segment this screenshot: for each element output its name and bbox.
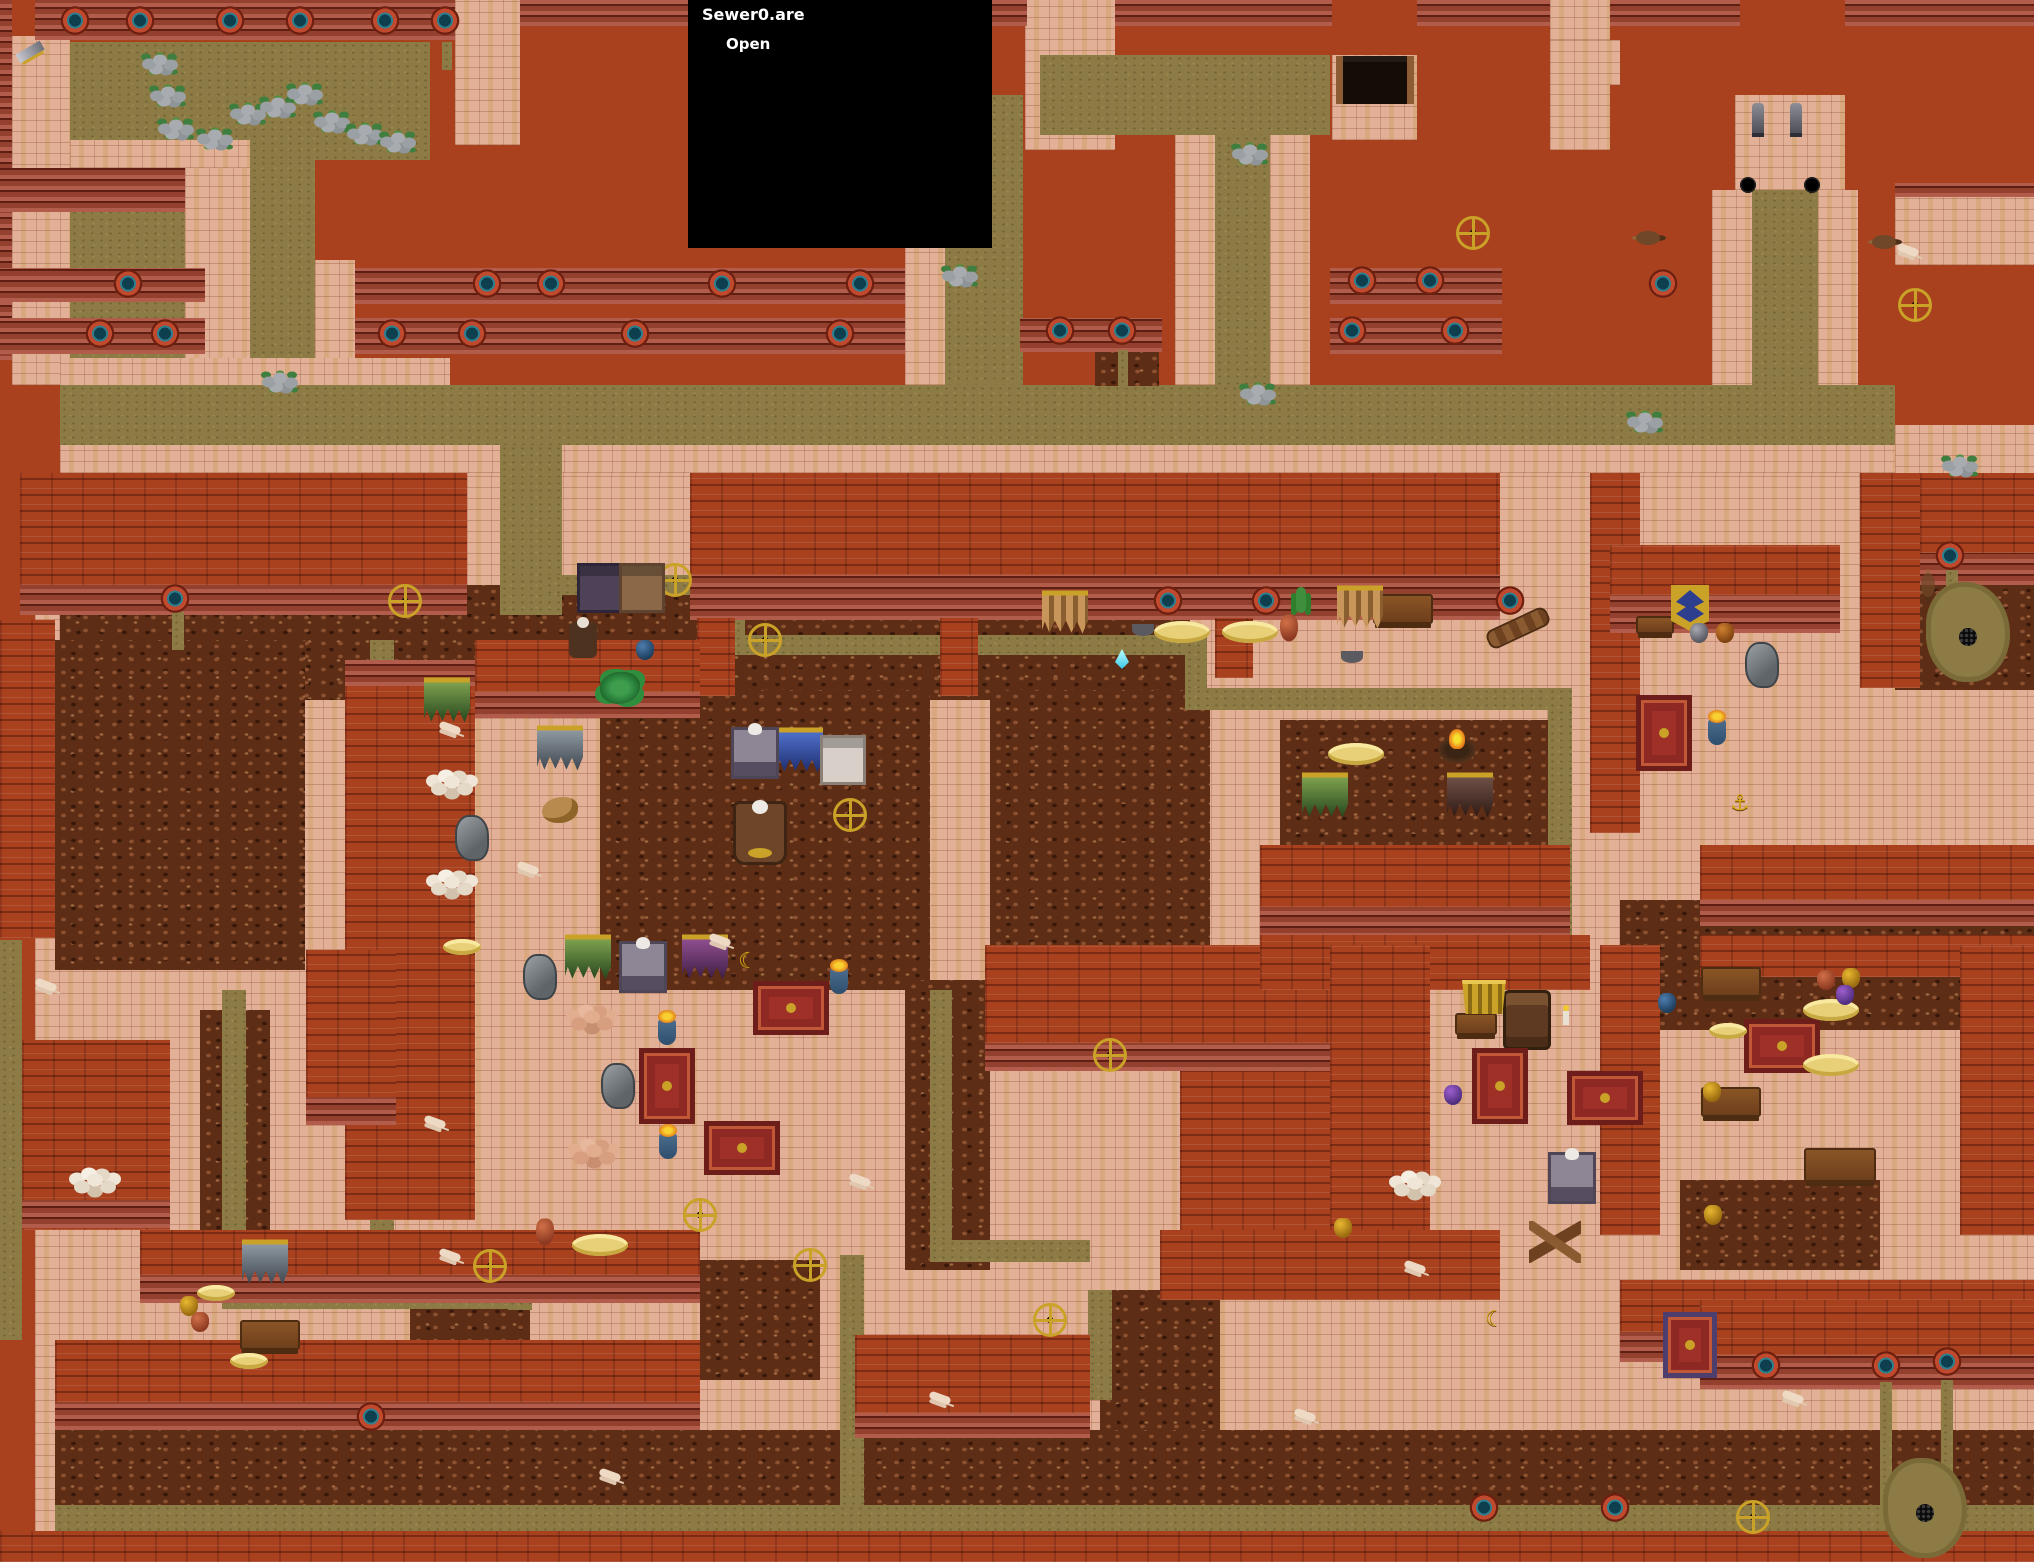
skull-pile[interactable] <box>1407 1177 1423 1190</box>
wall-block <box>1700 1300 2034 1355</box>
wall-band <box>0 168 185 212</box>
pot[interactable] <box>1280 615 1298 642</box>
pot[interactable] <box>1341 651 1363 663</box>
skull-pile[interactable] <box>584 1011 600 1024</box>
sewer-pipe[interactable] <box>1249 584 1283 620</box>
dialog-title: Sewer0.are <box>688 0 992 24</box>
hay-pile[interactable] <box>572 1234 628 1256</box>
sewer-pipe[interactable] <box>1930 1345 1964 1381</box>
wooden-table[interactable] <box>240 1320 300 1350</box>
sewer-pipe[interactable] <box>1043 314 1077 350</box>
wall-block <box>1700 845 2034 900</box>
carpet[interactable] <box>1636 695 1692 771</box>
mossy-rocks[interactable] <box>1953 457 1967 468</box>
mossy-rocks[interactable] <box>273 373 287 384</box>
path-olive <box>930 1240 1090 1262</box>
brazier[interactable] <box>658 1019 676 1045</box>
gold-trinket[interactable]: ☾ <box>738 951 758 973</box>
wall-band <box>992 0 1027 26</box>
gold-wheel-medallion[interactable] <box>1093 1038 1127 1072</box>
sewer-pipe[interactable] <box>1933 539 1967 575</box>
wall-block <box>1180 1071 1330 1241</box>
cabinet[interactable] <box>577 563 623 613</box>
wall-block <box>1590 473 1640 833</box>
sewer-pipe[interactable] <box>158 582 192 618</box>
wall-band <box>355 268 905 304</box>
hay-pile[interactable] <box>230 1353 268 1369</box>
candle[interactable] <box>1563 1011 1569 1025</box>
campfire[interactable] <box>1438 737 1476 763</box>
sewer-pipe[interactable] <box>368 4 402 40</box>
gold-wheel-medallion[interactable] <box>793 1248 827 1282</box>
wall-band <box>0 268 205 302</box>
floor-pink <box>70 140 250 168</box>
rubble-field <box>1680 1180 1880 1270</box>
gold-trinket[interactable]: ⚓ <box>1730 793 1750 815</box>
pot[interactable] <box>1836 985 1854 1005</box>
sewer-pipe[interactable] <box>455 317 489 353</box>
sewer-pipe[interactable] <box>1105 314 1139 350</box>
wall-band <box>1260 907 1570 937</box>
path-olive <box>930 990 952 1245</box>
sewer-pipe[interactable] <box>823 317 857 353</box>
path-olive <box>1088 1290 1112 1400</box>
pot[interactable] <box>636 640 654 660</box>
wall-band <box>22 1200 170 1228</box>
sewer-pipe[interactable] <box>283 4 317 40</box>
path-olive <box>60 385 1895 445</box>
wall-band <box>1895 183 2034 197</box>
floor-pink <box>1550 40 1620 85</box>
wooden-table[interactable] <box>1804 1148 1876 1182</box>
sewer-pipe[interactable] <box>1345 264 1379 300</box>
gold-wheel-medallion[interactable] <box>1898 288 1932 322</box>
wooden-table[interactable] <box>1636 616 1674 634</box>
doorway[interactable] <box>1336 56 1414 104</box>
statue[interactable] <box>1752 103 1764 133</box>
wall-block <box>1330 945 1430 1235</box>
floor-pink <box>1175 135 1215 385</box>
statue[interactable] <box>1790 103 1802 133</box>
mossy-rocks[interactable] <box>161 87 175 98</box>
sewer-pipe[interactable] <box>1438 314 1472 350</box>
mossy-rocks[interactable] <box>358 125 372 136</box>
skull-shrine[interactable] <box>619 941 667 993</box>
mossy-rocks[interactable] <box>241 105 255 116</box>
brazier[interactable] <box>830 968 848 994</box>
carpet[interactable] <box>704 1121 780 1175</box>
mossy-rocks[interactable] <box>1243 145 1257 156</box>
wall-band <box>306 1097 396 1125</box>
sewer-pipe[interactable] <box>83 317 117 353</box>
dialog-option-open[interactable]: Open <box>726 35 992 53</box>
skull-pile[interactable] <box>586 1145 602 1158</box>
standing-stone[interactable] <box>601 1063 635 1109</box>
mossy-rocks[interactable] <box>1638 413 1652 424</box>
insect-creature[interactable] <box>1921 573 1935 597</box>
pot[interactable] <box>1690 623 1708 643</box>
floor-pink <box>1270 135 1310 385</box>
hay-pile[interactable] <box>443 939 481 955</box>
pot[interactable] <box>536 1219 554 1246</box>
gold-wheel-medallion[interactable] <box>748 623 782 657</box>
golden-rack[interactable] <box>1462 980 1506 1014</box>
path-olive <box>442 42 452 70</box>
path-olive <box>72 42 82 70</box>
cabinet[interactable] <box>820 735 866 785</box>
wall-band <box>985 1043 1330 1071</box>
brazier[interactable] <box>1708 719 1726 745</box>
path-olive <box>1185 688 1560 710</box>
path-olive <box>1118 350 1128 388</box>
gold-wheel-medallion[interactable] <box>388 584 422 618</box>
path-olive <box>1040 55 1330 135</box>
pot[interactable] <box>1334 1218 1352 1238</box>
wall-band <box>1417 0 1550 26</box>
sewer-pipe[interactable] <box>213 4 247 40</box>
pot[interactable] <box>1703 1082 1721 1102</box>
sewer-pipe[interactable] <box>58 4 92 40</box>
wall-block <box>0 1531 2034 1562</box>
standing-stone[interactable] <box>523 954 557 1000</box>
wall-band <box>1610 0 1740 26</box>
sewer-pipe[interactable] <box>705 267 739 303</box>
mossy-rocks[interactable] <box>1251 385 1265 396</box>
mossy-rocks[interactable] <box>271 98 285 109</box>
gold-wheel-medallion[interactable] <box>1033 1303 1067 1337</box>
floor-pink <box>455 0 520 145</box>
gold-wheel-medallion[interactable] <box>1456 216 1490 250</box>
wall-block <box>690 473 1500 575</box>
sewage-pool[interactable] <box>1926 582 2010 682</box>
game-map[interactable]: ☾☾⚓ Sewer0.are Open <box>0 0 2034 1562</box>
sewer-pipe[interactable] <box>1335 314 1369 350</box>
mossy-rocks[interactable] <box>208 130 222 141</box>
sewer-pipe[interactable] <box>843 267 877 303</box>
mossy-rocks[interactable] <box>298 85 312 96</box>
wall-block <box>55 1340 700 1402</box>
area-dialog: Sewer0.are Open <box>688 0 992 248</box>
wall-band <box>1115 0 1332 26</box>
wall-band <box>1845 0 2034 26</box>
hay-pile[interactable] <box>197 1285 235 1301</box>
skull-pile[interactable] <box>444 776 460 789</box>
sewer-pipe[interactable] <box>1646 267 1680 303</box>
wall-band <box>855 1413 1090 1438</box>
sewer-pipe[interactable] <box>618 317 652 353</box>
gold-wheel-medallion[interactable] <box>473 1249 507 1283</box>
skull-shrine[interactable] <box>1548 1152 1596 1204</box>
wall-block <box>20 473 467 585</box>
rubble-field <box>55 1430 2034 1508</box>
standing-stone[interactable] <box>1745 642 1779 688</box>
mossy-rocks[interactable] <box>153 55 167 66</box>
carpet[interactable] <box>1472 1048 1528 1124</box>
skull-pile[interactable] <box>444 876 460 889</box>
standing-stone[interactable] <box>455 815 489 861</box>
carpet[interactable] <box>639 1048 695 1124</box>
carpet[interactable] <box>1663 1312 1717 1378</box>
wall-block <box>1860 473 1920 688</box>
gold-wheel-medallion[interactable] <box>1736 1500 1770 1534</box>
throne[interactable] <box>1503 990 1551 1050</box>
pot[interactable] <box>1716 623 1734 643</box>
sewer-pipe[interactable] <box>1151 584 1185 620</box>
wall-block <box>1610 545 1840 595</box>
wall-block <box>855 1335 1090 1413</box>
sewage-pool[interactable] <box>1883 1458 1967 1558</box>
broken-cart[interactable] <box>1529 1221 1581 1263</box>
carpet[interactable] <box>753 981 829 1035</box>
pot[interactable] <box>1704 1205 1722 1225</box>
hay-pile[interactable] <box>1222 621 1278 643</box>
wall-block <box>697 618 735 696</box>
wooden-table[interactable] <box>1701 967 1761 997</box>
hay-pile[interactable] <box>1803 1054 1859 1076</box>
pot[interactable] <box>1817 970 1835 990</box>
pot[interactable] <box>180 1296 198 1316</box>
wall-band <box>475 692 700 718</box>
sewer-pipe[interactable] <box>1467 1491 1501 1527</box>
sewer-pipe[interactable] <box>148 317 182 353</box>
mossy-rocks[interactable] <box>953 267 967 278</box>
pot[interactable] <box>1444 1085 1462 1105</box>
mossy-rocks[interactable] <box>325 113 339 124</box>
npc-figure[interactable] <box>569 622 597 658</box>
insect-creature[interactable] <box>1636 231 1660 245</box>
wall-block <box>1260 845 1570 907</box>
wooden-table[interactable] <box>1455 1013 1497 1035</box>
plant[interactable] <box>1296 587 1306 613</box>
hay-pile[interactable] <box>1328 743 1384 765</box>
wall-band <box>1700 900 2034 926</box>
pot[interactable] <box>1658 993 1676 1013</box>
wall-block <box>1960 945 2034 1235</box>
gold-wheel-medallion[interactable] <box>683 1198 717 1232</box>
wall-block <box>1160 1230 1500 1300</box>
floor-hole[interactable] <box>1804 177 1820 193</box>
sewer-pipe[interactable] <box>1413 264 1447 300</box>
hay-pile[interactable] <box>1709 1023 1747 1039</box>
rubble-field <box>55 640 305 970</box>
sewer-pipe[interactable] <box>111 267 145 303</box>
sewer-pipe[interactable] <box>1598 1491 1632 1527</box>
wall-block <box>940 618 978 696</box>
brazier[interactable] <box>659 1133 677 1159</box>
sewer-pipe[interactable] <box>123 4 157 40</box>
floor-pink <box>60 445 1895 473</box>
floor-hole[interactable] <box>1740 177 1756 193</box>
path-olive <box>297 42 307 70</box>
pot[interactable] <box>1132 624 1154 636</box>
sewer-pipe[interactable] <box>534 267 568 303</box>
wall-band <box>1020 318 1162 352</box>
floor-pink <box>60 358 450 386</box>
path-olive <box>1215 135 1270 385</box>
mossy-rocks[interactable] <box>169 120 183 131</box>
sewer-pipe[interactable] <box>428 4 462 40</box>
sewer-pipe[interactable] <box>375 317 409 353</box>
skull-shrine[interactable] <box>731 727 779 779</box>
gold-trinket[interactable]: ☾ <box>1485 1309 1505 1331</box>
insect-creature[interactable] <box>1872 235 1896 249</box>
sewer-pipe[interactable] <box>1869 1349 1903 1385</box>
hay-pile[interactable] <box>1154 621 1210 643</box>
cabinet[interactable] <box>619 563 665 613</box>
wall-block <box>0 620 55 938</box>
carpet[interactable] <box>1567 1071 1643 1125</box>
sewer-pipe[interactable] <box>1749 1349 1783 1385</box>
pot[interactable] <box>191 1312 209 1332</box>
sewer-pipe[interactable] <box>354 1400 388 1436</box>
mossy-rocks[interactable] <box>391 133 405 144</box>
wall-band <box>520 0 690 26</box>
gold-wheel-medallion[interactable] <box>833 798 867 832</box>
path-olive <box>0 940 22 1340</box>
rubble-field <box>990 690 1210 970</box>
sewer-pipe[interactable] <box>470 267 504 303</box>
skull-pile[interactable] <box>87 1174 103 1187</box>
skull-altar[interactable] <box>733 801 787 865</box>
